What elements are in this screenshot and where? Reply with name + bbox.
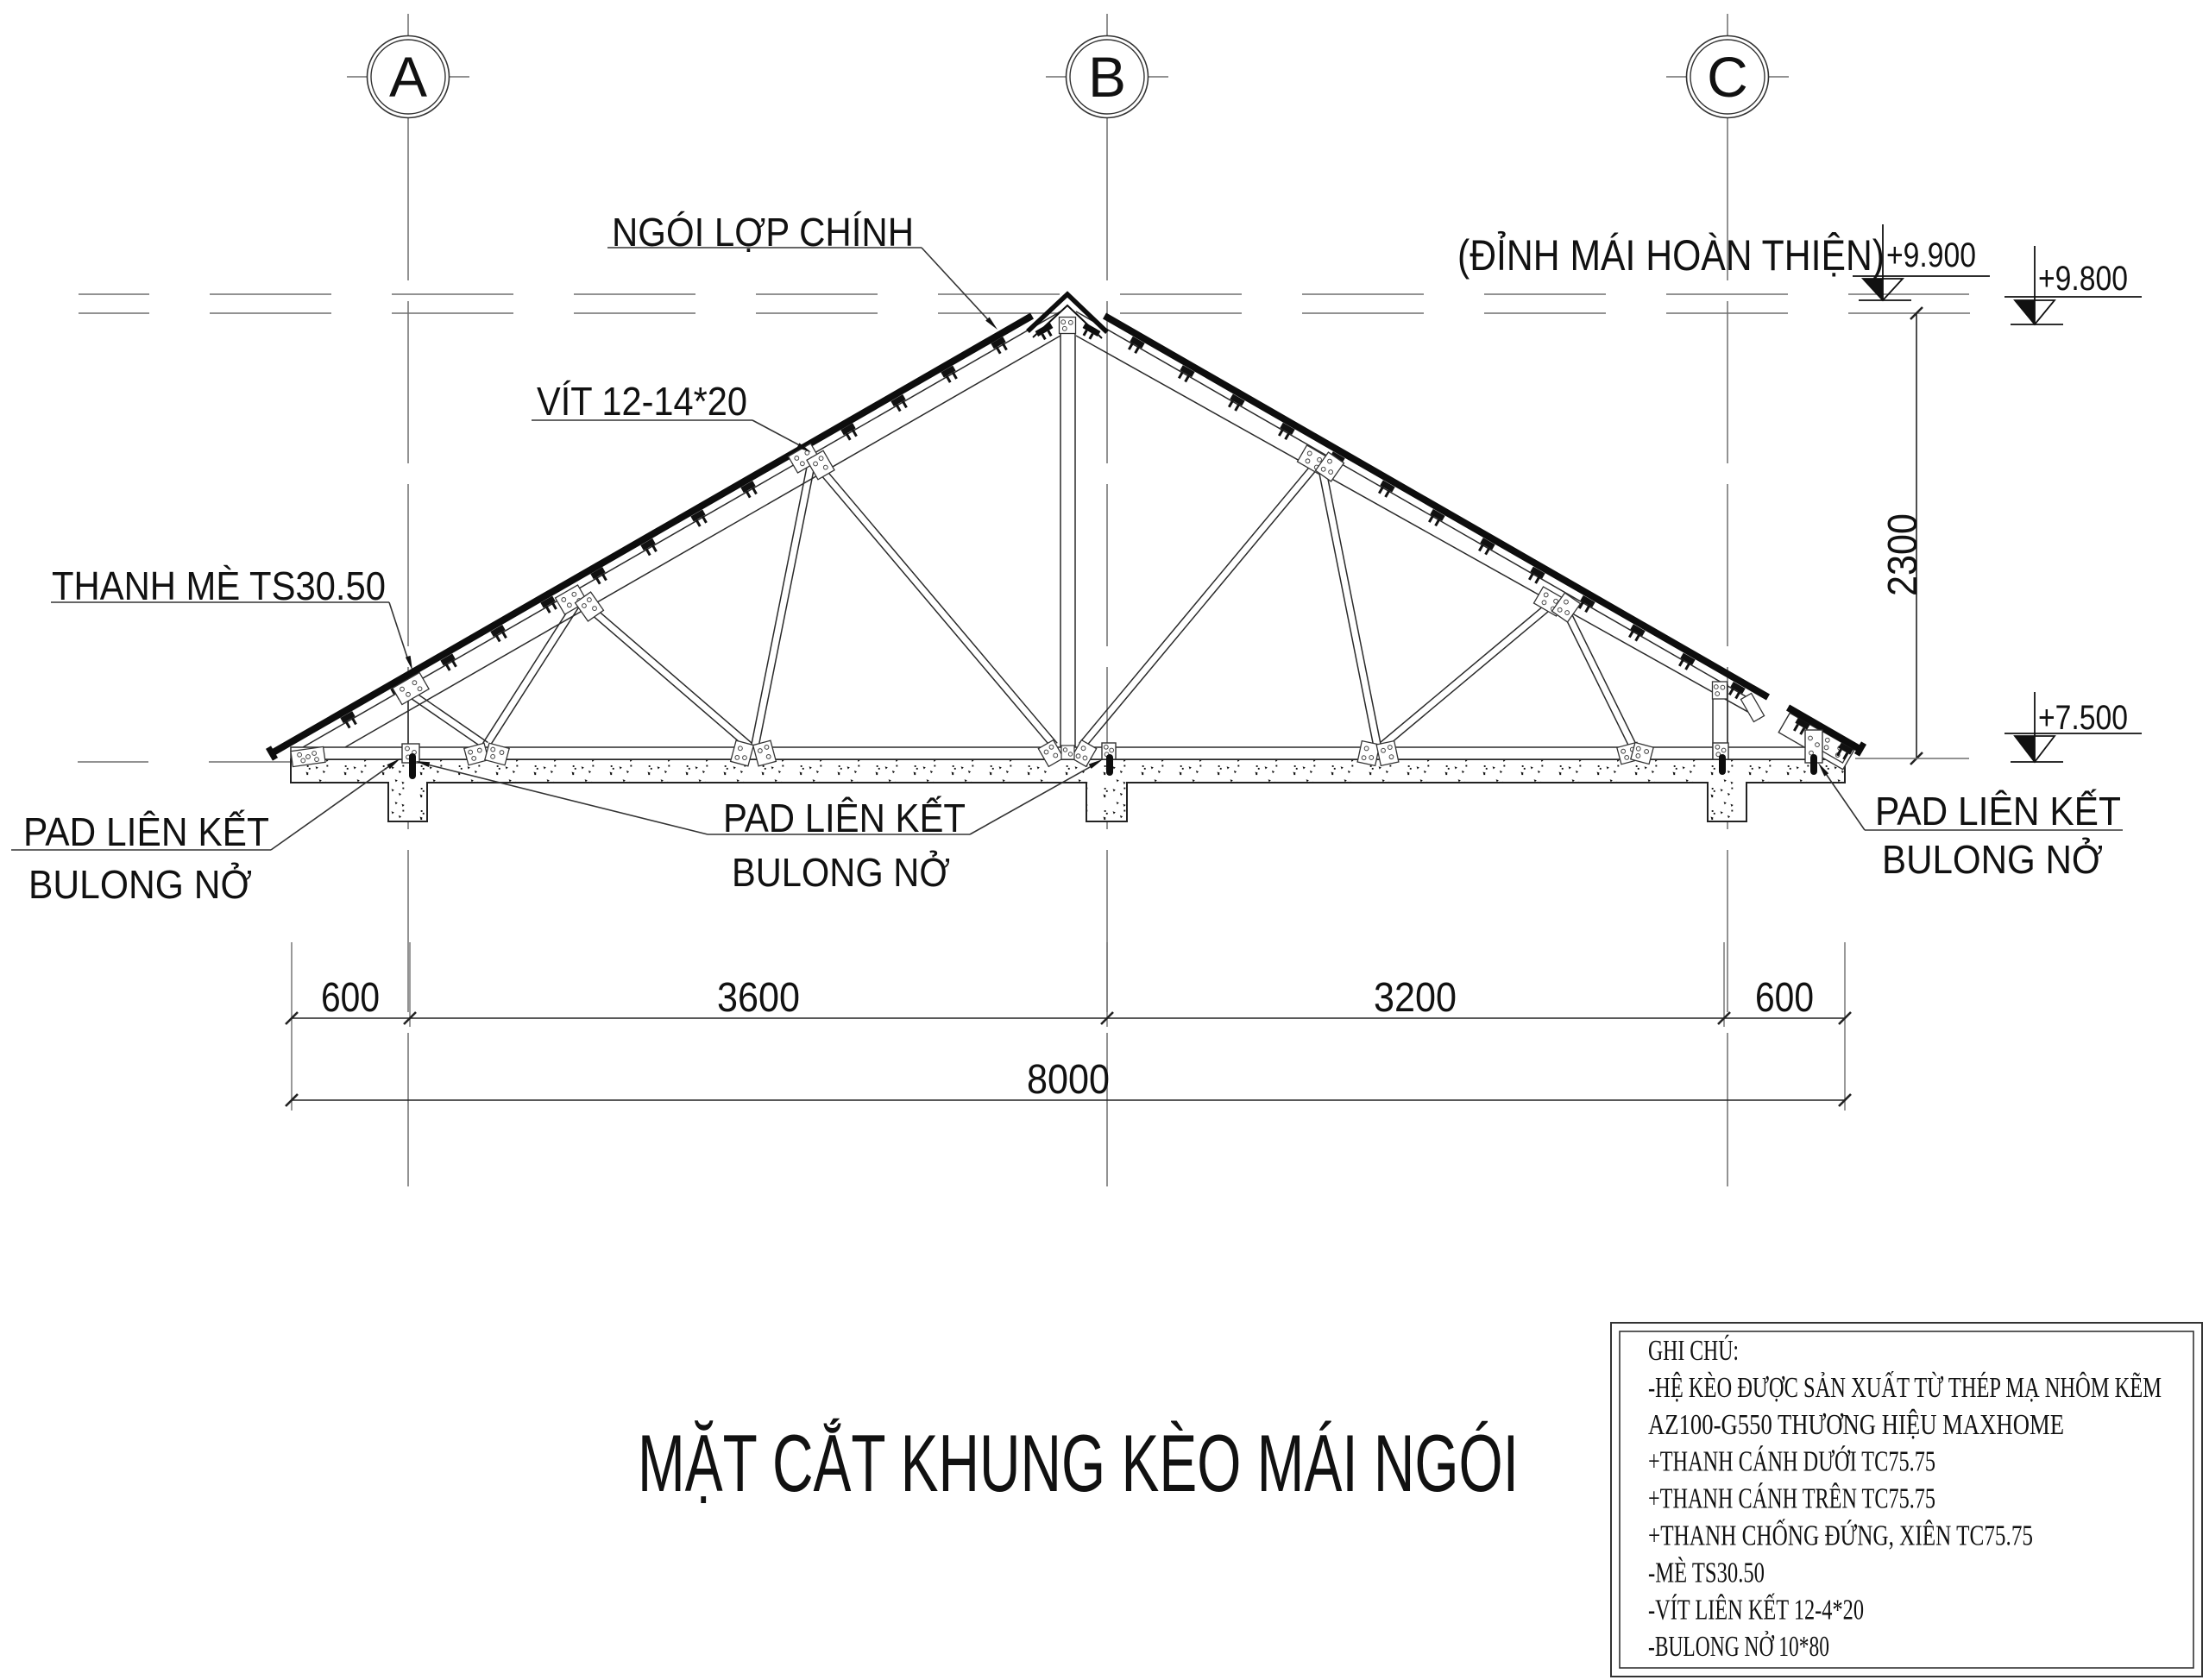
svg-text:600: 600: [321, 975, 380, 1021]
svg-text:-HỆ KÈO ĐƯỢC SẢN XUẤT TỪ THÉP: -HỆ KÈO ĐƯỢC SẢN XUẤT TỪ THÉP MẠ NHÔM KẼ…: [1648, 1371, 2162, 1404]
svg-text:+THANH CÁNH DƯỚI TC75.75: +THANH CÁNH DƯỚI TC75.75: [1648, 1445, 1935, 1478]
svg-text:2300: 2300: [1880, 513, 1926, 596]
svg-text:C: C: [1707, 45, 1748, 109]
svg-text:+9.900: +9.900: [1886, 236, 1976, 274]
svg-text:BULONG NỞ: BULONG NỞ: [28, 862, 252, 907]
svg-text:-VÍT LIÊN KẾT 12-4*20: -VÍT LIÊN KẾT 12-4*20: [1648, 1593, 1864, 1626]
svg-text:8000: 8000: [1027, 1057, 1110, 1103]
svg-text:-MÈ TS30.50: -MÈ TS30.50: [1648, 1557, 1765, 1589]
svg-text:VÍT 12-14*20: VÍT 12-14*20: [537, 379, 747, 424]
svg-text:MẶT CẮT KHUNG KÈO MÁI NGÓI: MẶT CẮT KHUNG KÈO MÁI NGÓI: [638, 1418, 1519, 1508]
svg-text:GHI CHÚ:: GHI CHÚ:: [1648, 1334, 1739, 1367]
svg-text:PAD LIÊN KẾT: PAD LIÊN KẾT: [23, 809, 269, 854]
svg-text:3200: 3200: [1374, 975, 1457, 1021]
svg-text:3600: 3600: [717, 975, 800, 1021]
svg-text:PAD LIÊN KẾT: PAD LIÊN KẾT: [1875, 789, 2121, 834]
svg-text:A: A: [389, 45, 427, 109]
svg-text:B: B: [1088, 45, 1126, 109]
svg-text:600: 600: [1755, 975, 1814, 1021]
svg-text:BULONG NỞ: BULONG NỞ: [732, 850, 950, 895]
svg-text:+THANH CHỐNG ĐỨNG, XIÊN TC75.: +THANH CHỐNG ĐỨNG, XIÊN TC75.75: [1648, 1519, 2033, 1552]
svg-text:+9.800: +9.800: [2038, 260, 2128, 298]
svg-text:-BULONG NỞ 10*80: -BULONG NỞ 10*80: [1648, 1631, 1829, 1663]
svg-text:BULONG NỞ: BULONG NỞ: [1882, 837, 2103, 882]
svg-text:(ĐỈNH MÁI HOÀN THIỆN): (ĐỈNH MÁI HOÀN THIỆN): [1457, 231, 1885, 280]
svg-text:AZ100-G550 THƯƠNG HIỆU MAXHOME: AZ100-G550 THƯƠNG HIỆU MAXHOME: [1648, 1409, 2064, 1441]
svg-text:+7.500: +7.500: [2038, 699, 2128, 737]
svg-text:+THANH CÁNH TRÊN TC75.75: +THANH CÁNH TRÊN TC75.75: [1648, 1483, 1935, 1515]
